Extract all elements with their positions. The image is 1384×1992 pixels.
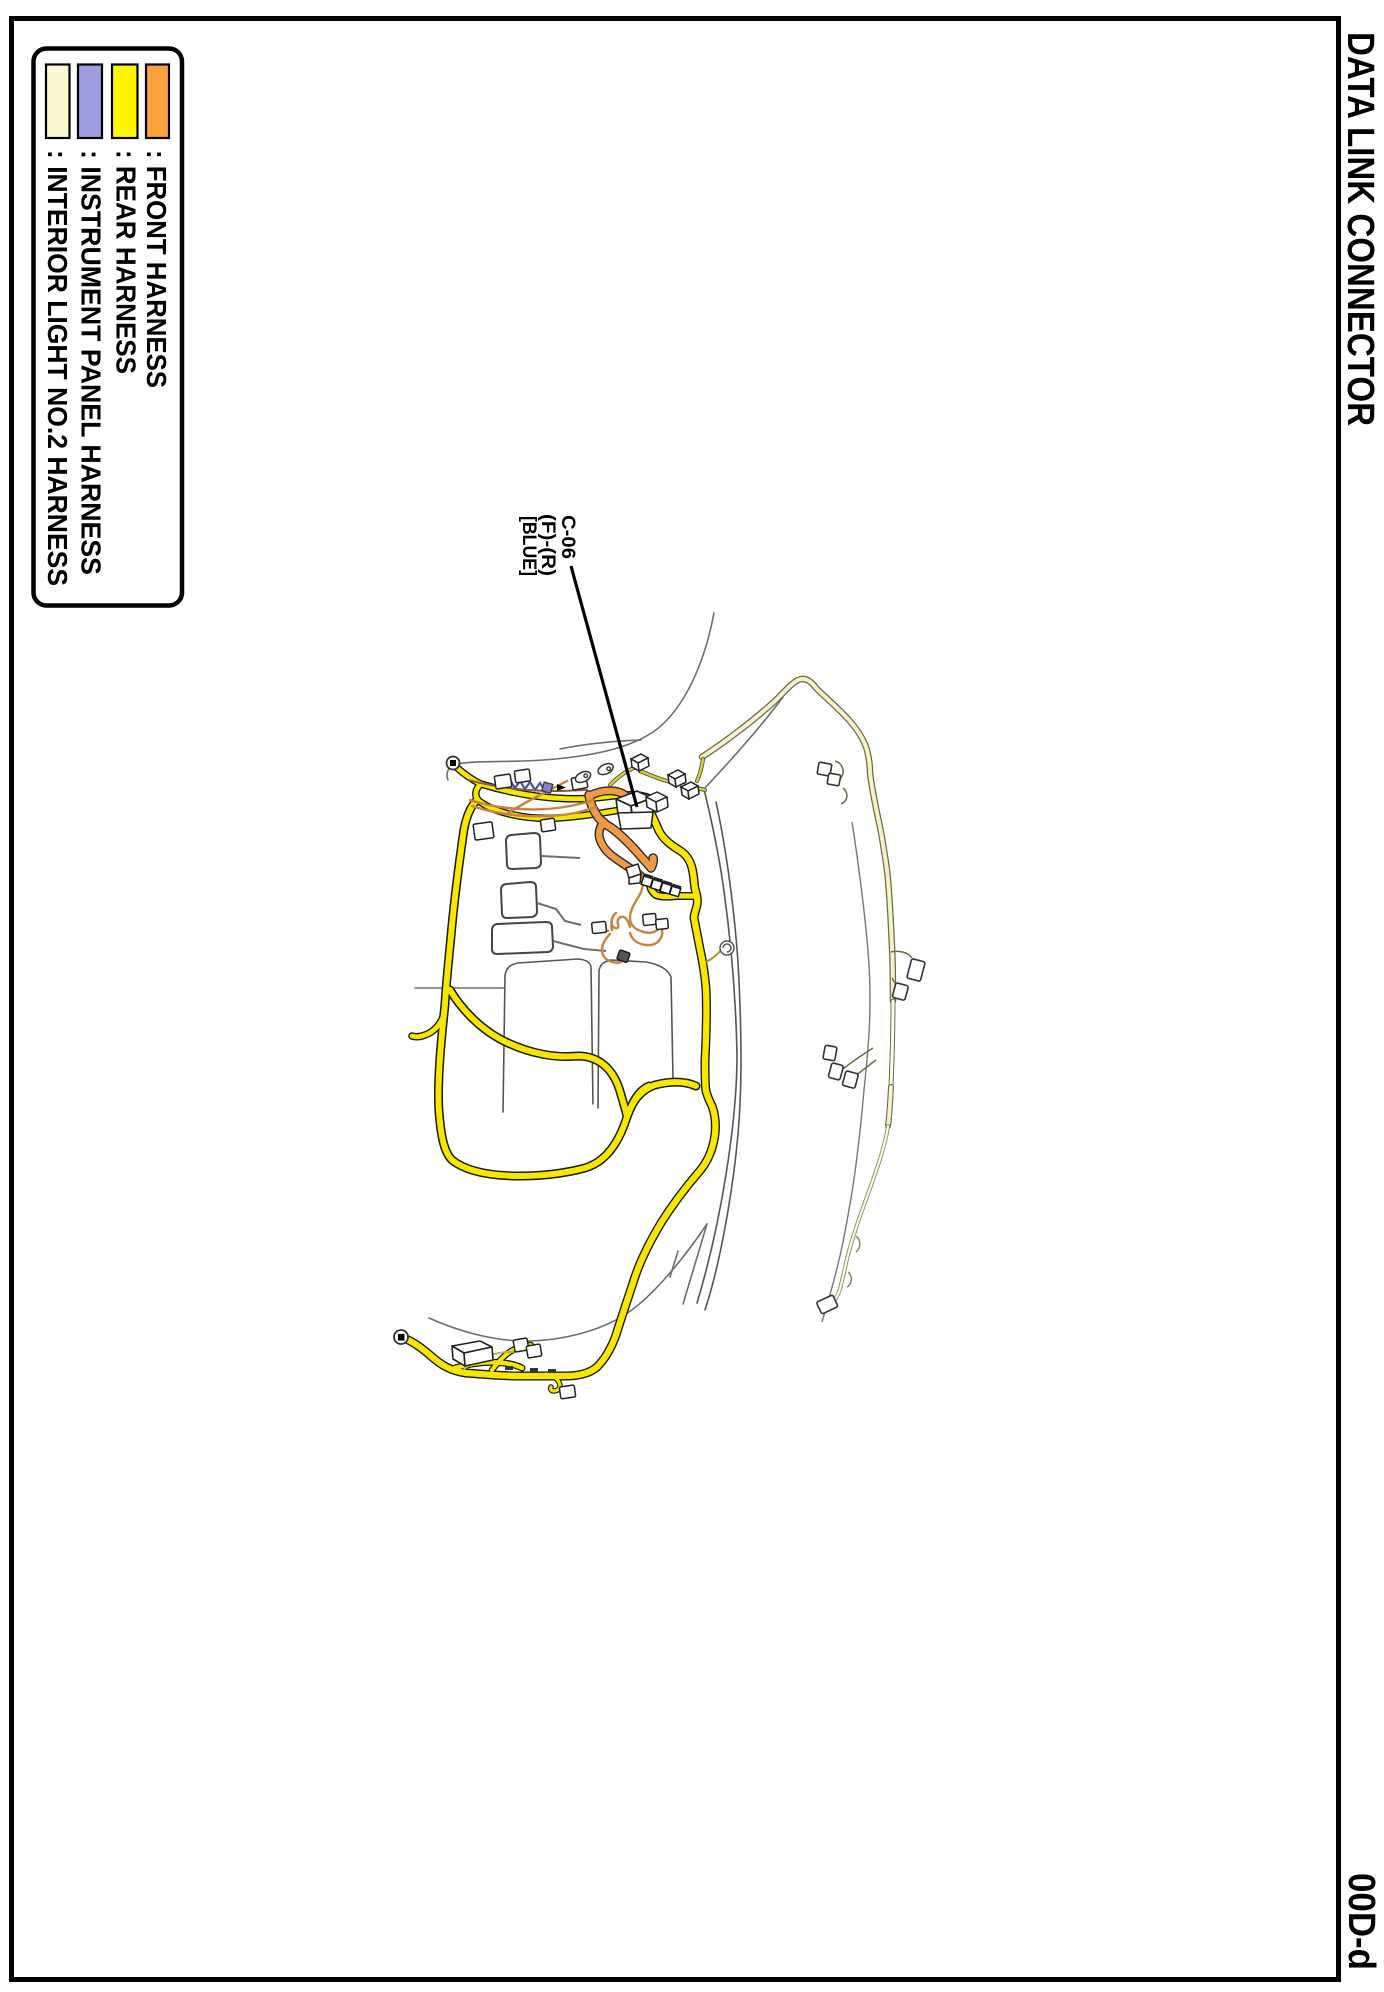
svg-text:[BLUE]: [BLUE]	[518, 516, 540, 576]
svg-text:00D-d: 00D-d	[1340, 1873, 1382, 1970]
svg-text:: FRONT HARNESS: : FRONT HARNESS	[141, 150, 172, 388]
svg-text:: INTERIOR LIGHT NO.2 HARNESS: : INTERIOR LIGHT NO.2 HARNESS	[42, 150, 73, 586]
svg-text:C-06: C-06	[557, 515, 579, 559]
svg-text:: REAR HARNESS: : REAR HARNESS	[111, 150, 142, 374]
svg-text:: INSTRUMENT PANEL HARNESS: : INSTRUMENT PANEL HARNESS	[76, 150, 107, 575]
svg-text:DATA LINK CONNECTOR: DATA LINK CONNECTOR	[1339, 32, 1381, 426]
